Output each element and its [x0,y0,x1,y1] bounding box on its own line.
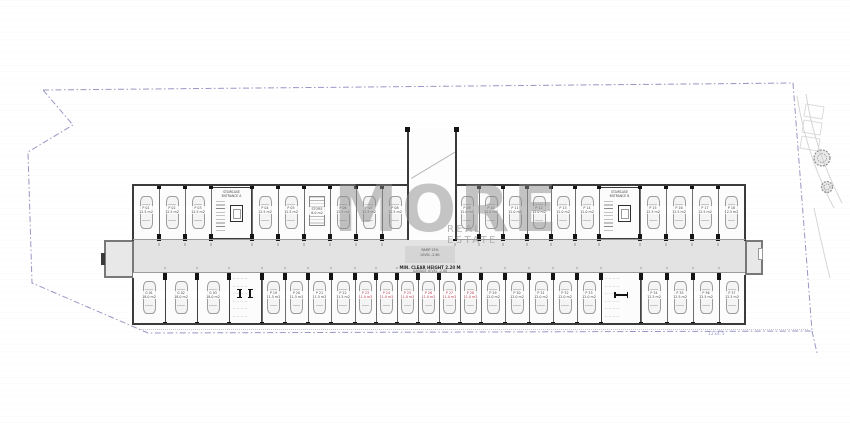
stall-divider [355,272,356,324]
stall-divider [577,272,578,324]
stall-label: P 2811.0 m2 [460,291,481,299]
room-text-line: — — — — [605,300,640,303]
parking-building-layer: P 0112.5 m2P 0212.5 m2P 0312.5 m2STAIRCA… [0,0,850,425]
stall-label: P 1412.0 m2 [575,206,599,214]
aisle-tick [526,243,528,246]
stall-area: 12.5 m2 [693,295,719,299]
aisle-tick [277,243,279,246]
room-text-line: — — — — [605,307,640,310]
stall-divider [439,272,440,324]
stall-divider [165,272,167,324]
aisle-tick [576,267,578,270]
column-marker [283,273,287,280]
stall-label: P 0312.5 m2 [185,206,211,214]
stall-label: P 2912.0 m2 [481,291,505,299]
room-text-line: — — — — [233,315,261,318]
stall-divider [529,272,530,324]
bottom-parking-stall: P 3112.0 m2 [529,272,553,324]
stall-label: P 1812.5 m2 [718,206,745,214]
bottom-parking-stall: P 1911.5 m2 [262,272,285,324]
aisle-tick [666,267,668,270]
aisle-tick [691,243,693,246]
aisle-tick [528,267,530,270]
room-text-line: — — — — [605,277,640,280]
stall-label: P 1212.0 m2 [527,206,551,214]
stall-divider [197,272,199,324]
stall-label: G 0118.0 m2 [133,291,165,299]
stall-area: 12.0 m2 [481,295,505,299]
top-parking-stall: P 0412.5 m2 [252,187,278,239]
stall-front-line [455,239,745,240]
bottom-parking-stall: P 3412.5 m2 [641,272,667,324]
stall-divider [505,272,506,324]
stall-divider [503,187,504,239]
stall-area: 12.0 m2 [551,210,575,214]
top-parking-stall: P 1512.5 m2 [640,187,666,239]
aisle-tick [355,243,357,246]
stall-label: P 0612.5 m2 [330,206,356,214]
stall-label: P 2211.5 m2 [331,291,355,299]
stall-divider [278,187,279,239]
ramp-interior [409,128,455,239]
bottom-parking-stall: P 2912.0 m2 [481,272,505,324]
aisle-tick [692,267,694,270]
aisle-tick [284,267,286,270]
bottom-parking-stall: P 2511.0 m2 [397,272,418,324]
stall-area: 12.5 m2 [330,210,356,214]
top-parking-stall: P 0112.5 m2 [133,187,159,239]
bottom-parking-stall: P 3212.0 m2 [553,272,577,324]
room-text-line: — — — — [605,285,640,288]
stall-label: P 0712.5 m2 [356,206,382,214]
stall-area: 11.5 m2 [262,295,285,299]
stall-label: P 3112.0 m2 [529,291,553,299]
aisle-left-stub [104,240,134,278]
stall-label: P 2411.0 m2 [376,291,397,299]
stall-divider [692,187,693,239]
column-marker [527,273,531,280]
aisle-tick [164,267,166,270]
stall-label: P 3212.0 m2 [553,291,577,299]
aisle-tick [598,243,600,246]
stall-divider [551,187,552,239]
column-marker [599,273,603,280]
stall-divider [376,272,377,324]
ramp-wall-left [407,128,409,240]
stall-divider [382,187,383,239]
bottom-parking-stall: P 3712.5 m2 [719,272,745,324]
core-label: STAIRCASEENTRANCE B [600,190,639,198]
room-text-line: — — — — [233,292,261,295]
stall-area: 12.5 m2 [692,210,718,214]
stall-divider [330,187,331,239]
top-core: STAIRCASEENTRANCE A [211,187,252,239]
stall-area: 18.0 m2 [197,295,229,299]
aisle-tick [552,267,554,270]
ramp-landing-line2: LEVEL -2.80 [405,253,455,258]
stall-area: 12.5 m2 [278,210,304,214]
bottom-parking-stall: P 3612.5 m2 [693,272,719,324]
ramp-wall-right [455,128,457,240]
top-parking-stall: P 1212.0 m2 [527,187,551,239]
core-label-line2: ENTRANCE A [212,194,251,198]
stall-front-line [133,239,407,240]
stall-area: 12.0 m2 [455,210,479,214]
bottom-parking-stall: P 2011.5 m2 [285,272,308,324]
stall-label: P 1612.5 m2 [666,206,692,214]
aisle-tick [600,267,602,270]
top-parking-stall: P 1312.0 m2 [551,187,575,239]
bottom-gar: G 0118.0 m2 [133,272,165,324]
stall-area: 12.0 m2 [503,210,527,214]
bottom-gar: G 0318.0 m2 [197,272,229,324]
stall-divider [718,187,719,239]
aisle-tick [329,243,331,246]
bottom-parking-stall: P 3312.0 m2 [577,272,601,324]
stall-area: 12.0 m2 [575,210,599,214]
stall-area: 12.0 m2 [527,210,551,214]
stall-divider [356,187,357,239]
floor-plan-sheet: P 0112.5 m2P 0212.5 m2P 0312.5 m2STAIRCA… [0,0,850,425]
stall-label: P 1911.5 m2 [262,291,285,299]
stall-label: P 1012.0 m2 [479,206,503,214]
outer-wall-bottom [133,323,745,325]
bottom-parking-stall: P 2211.5 m2 [331,272,355,324]
bottom-gar: G 0218.0 m2 [165,272,197,324]
room-text-line: — — — — [233,307,261,310]
stall-label: P 0212.5 m2 [159,206,185,214]
aisle-tick [210,243,212,246]
stall-area: 12.5 m2 [252,210,278,214]
stall-label: P 2711.0 m2 [439,291,460,299]
stall-label: P 3412.5 m2 [641,291,667,299]
top-parking-stall: P 0712.5 m2 [356,187,382,239]
column-marker [717,273,721,280]
bottom-parking-stall: P 2811.0 m2 [460,272,481,324]
top-parking-stall: P 1412.0 m2 [575,187,599,239]
stall-area: 12.5 m2 [640,210,666,214]
stall-divider [397,272,398,324]
stair-flight [604,201,613,232]
aisle-tick [184,243,186,246]
top-parking-stall: P 0612.5 m2 [330,187,356,239]
top-parking-stall: P 1012.0 m2 [479,187,503,239]
stall-area: 11.0 m2 [355,295,376,299]
stall-divider [331,272,332,324]
aisle-tick [550,243,552,246]
stall-area: 11.5 m2 [331,295,355,299]
stall-divider [666,187,667,239]
stall-label: P 2111.5 m2 [308,291,331,299]
stall-divider [640,187,641,239]
aisle-note-line2: GARAGE LEVEL -2.80 [355,270,505,274]
stall-label: P 1312.0 m2 [551,206,575,214]
aisle-tick [665,243,667,246]
stall-divider [185,187,186,239]
aisle-tick [196,267,198,270]
stall-divider [304,187,305,239]
rack-symbol [239,290,241,297]
bottom-parking-stall: P 2411.0 m2 [376,272,397,324]
outer-wall-top-left [133,184,407,186]
ramp-wall-cap [405,127,410,132]
column-marker [163,273,167,280]
stall-label: P 0512.5 m2 [278,206,304,214]
rack-symbol [249,290,251,297]
top-parking-stall: P 0212.5 m2 [159,187,185,239]
stall-area: 12.5 m2 [133,210,159,214]
bottom-parking-stall: P 2711.0 m2 [439,272,460,324]
column-marker [306,273,310,280]
aisle-tick [502,243,504,246]
core-label-line2: ENTRANCE B [600,194,639,198]
stall-area: 12.5 m2 [667,295,693,299]
stall-label: P 3312.0 m2 [577,291,601,299]
room-text-line: — — — — [233,300,261,303]
stall-area: 11.0 m2 [397,295,418,299]
aisle-tick [307,267,309,270]
column-marker [329,273,333,280]
column-marker [639,273,643,280]
stall-divider [601,272,603,324]
ramp-landing: RAMP 15% LEVEL -2.80 [405,246,455,263]
top-store: STORE6.0 m2 [304,187,330,239]
stall-area: 12.0 m2 [505,295,529,299]
stair-flight [216,201,225,232]
outer-wall-right-up [744,184,746,241]
column-marker [575,273,579,280]
stall-label: P 2311.0 m2 [355,291,376,299]
bottom-room: — — — —— — — —— — — —— — — —— — — —— — —… [601,272,641,324]
stall-label: P 0412.5 m2 [252,206,278,214]
stall-divider [252,187,253,239]
stall-label: G 0218.0 m2 [165,291,197,299]
aisle-tick [717,243,719,246]
column-marker [227,273,231,280]
column-marker [665,273,669,280]
stall-label: P 1512.5 m2 [640,206,666,214]
elevator-shaft [230,205,243,222]
stall-area: 12.5 m2 [382,210,408,214]
stall-area: 12.5 m2 [718,210,745,214]
stall-label: P 3712.5 m2 [719,291,745,299]
stall-area: 12.0 m2 [529,295,553,299]
stall-label: P 2611.0 m2 [418,291,439,299]
stall-divider [481,272,482,324]
bottom-parking-stall: P 2611.0 m2 [418,272,439,324]
stall-area: 12.5 m2 [719,295,745,299]
outer-wall-top-right [455,184,745,186]
stall-area: 11.5 m2 [285,295,308,299]
stall-label: P 2011.5 m2 [285,291,308,299]
aisle-tick [640,267,642,270]
stall-area: 12.0 m2 [577,295,601,299]
column-marker [691,273,695,280]
top-parking-stall: P 1712.5 m2 [692,187,718,239]
stall-area: 12.5 m2 [185,210,211,214]
bottom-parking-stall: P 3512.5 m2 [667,272,693,324]
stall-divider [211,187,212,239]
stall-label: P 0912.0 m2 [455,206,479,214]
stall-label: P 3012.0 m2 [505,291,529,299]
stall-area: 11.5 m2 [308,295,331,299]
top-parking-stall: P 0512.5 m2 [278,187,304,239]
stall-divider [229,272,231,324]
stall-area: 12.5 m2 [356,210,382,214]
stall-label: P 2511.0 m2 [397,291,418,299]
top-parking-stall: P 1812.5 m2 [718,187,745,239]
aisle-tick [261,267,263,270]
stall-divider [308,272,309,324]
bottom-parking-stall: P 2311.0 m2 [355,272,376,324]
aisle-tick [303,243,305,246]
aisle-tick [478,243,480,246]
stall-area: 18.0 m2 [165,295,197,299]
stall-divider [285,272,286,324]
stall-divider [527,187,528,239]
outer-wall-right-dn [744,275,746,325]
aisle-tick [251,243,253,246]
top-parking-stall: P 1112.0 m2 [503,187,527,239]
aisle-tick [574,243,576,246]
stall-area: 18.0 m2 [133,295,165,299]
stall-divider [693,272,694,324]
stall-area: 11.0 m2 [460,295,481,299]
stall-label: P 1712.5 m2 [692,206,718,214]
aisle-note: MIN. CLEAR HEIGHT 2.20 M GARAGE LEVEL -2… [355,266,505,274]
top-parking-stall: P 0312.5 m2 [185,187,211,239]
stall-label: G 0318.0 m2 [197,291,229,299]
bottom-parking-stall: P 2111.5 m2 [308,272,331,324]
stall-label: P 0812.5 m2 [382,206,408,214]
stall-area: 12.0 m2 [479,210,503,214]
stall-divider [262,272,263,324]
stall-label: STORE6.0 m2 [304,207,330,215]
left-stub-door [101,253,105,265]
stall-area: 11.0 m2 [439,295,460,299]
stall-divider [641,272,642,324]
stall-label: P 0112.5 m2 [133,206,159,214]
stall-area: 12.0 m2 [553,295,577,299]
stall-divider [575,187,576,239]
stall-label: P 3512.5 m2 [667,291,693,299]
top-parking-stall: P 1612.5 m2 [666,187,692,239]
aisle-tick [158,243,160,246]
right-stub-door [758,248,763,260]
elevator-shaft [618,205,631,222]
room-text-line: — — — — [605,315,640,318]
aisle-tick [330,267,332,270]
top-parking-stall: P 0812.5 m2 [382,187,408,239]
ramp-wall-cap [454,127,459,132]
stall-area: 11.0 m2 [376,295,397,299]
stall-divider [719,272,720,324]
stall-area: 6.0 m2 [304,211,330,215]
stall-area: 12.5 m2 [666,210,692,214]
aisle-tick [718,267,720,270]
stall-divider [159,187,160,239]
aisle-tick [381,243,383,246]
stall-divider [599,187,600,239]
site-edge-dotted [140,329,808,330]
stall-area: 12.5 m2 [641,295,667,299]
column-marker [551,273,555,280]
stall-divider [553,272,554,324]
outer-wall-left-dn [132,278,134,325]
stall-area: 11.0 m2 [418,295,439,299]
stall-divider [479,187,480,239]
top-parking-stall: P 0912.0 m2 [455,187,479,239]
column-marker [195,273,199,280]
top-core: STAIRCASEENTRANCE B [599,187,640,239]
bottom-room: — — — —— — — —— — — —— — — —— — — —— — —… [229,272,262,324]
stall-area: 12.5 m2 [159,210,185,214]
room-text-line: — — — — [233,285,261,288]
stall-label: P 1112.0 m2 [503,206,527,214]
bottom-parking-stall: P 3012.0 m2 [505,272,529,324]
aisle-tick [228,267,230,270]
stall-divider [667,272,668,324]
aisle-tick [639,243,641,246]
column-marker [260,273,264,280]
boundary-dimension-label: 1234.5 [708,331,725,336]
outer-wall-left-up [132,184,134,241]
stall-divider [460,272,461,324]
stall-divider [418,272,419,324]
core-label: STAIRCASEENTRANCE A [212,190,251,198]
room-text-line: — — — — [233,277,261,280]
rack-symbol [616,294,627,296]
stall-label: P 3612.5 m2 [693,291,719,299]
